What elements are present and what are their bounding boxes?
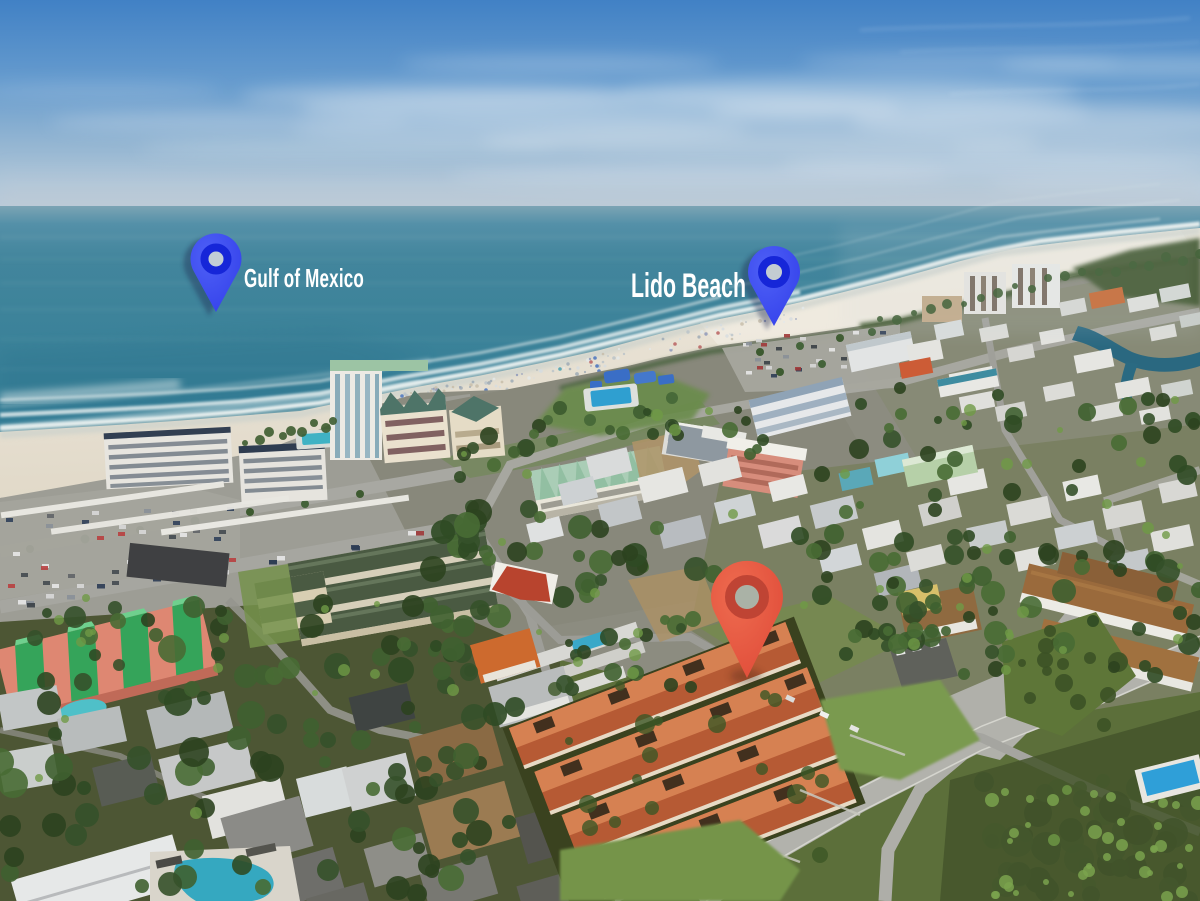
svg-text:Lido Beach: Lido Beach (631, 267, 746, 305)
svg-text:Gulf of Mexico: Gulf of Mexico (244, 263, 364, 293)
